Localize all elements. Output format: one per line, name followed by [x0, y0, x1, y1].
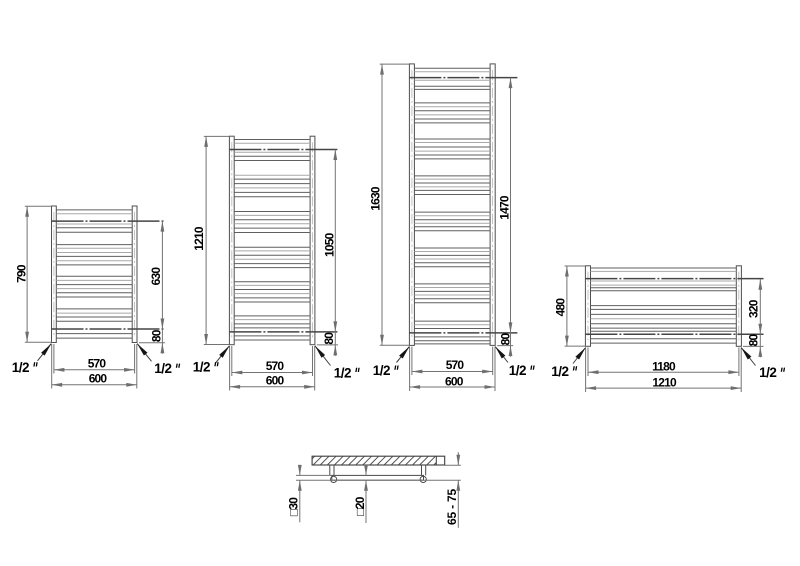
svg-text:1470: 1470	[498, 195, 512, 220]
svg-text:1/2: 1/2	[193, 360, 210, 375]
svg-text:65 - 75: 65 - 75	[445, 488, 459, 524]
svg-text:1/2: 1/2	[154, 361, 171, 376]
svg-text:80: 80	[322, 332, 336, 345]
svg-text:1/2: 1/2	[551, 364, 568, 379]
svg-text:630: 630	[149, 267, 163, 286]
svg-text:600: 600	[445, 374, 464, 388]
svg-text:80: 80	[747, 334, 761, 347]
svg-text:320: 320	[747, 299, 761, 318]
svg-text:1630: 1630	[369, 186, 383, 211]
svg-text:80: 80	[498, 333, 512, 346]
svg-text:480: 480	[554, 298, 568, 317]
svg-text:570: 570	[88, 356, 107, 370]
svg-text:570: 570	[446, 358, 465, 372]
svg-text:1/2: 1/2	[334, 365, 351, 380]
svg-text:1/2: 1/2	[759, 365, 776, 380]
svg-text:1/2: 1/2	[509, 363, 526, 378]
svg-text:1180: 1180	[652, 359, 676, 373]
svg-text:□20: □20	[353, 496, 367, 515]
svg-text:600: 600	[266, 374, 285, 388]
svg-text:1/2: 1/2	[12, 360, 29, 375]
svg-text:80: 80	[150, 329, 164, 342]
svg-text:1210: 1210	[192, 226, 206, 251]
svg-text:□30: □30	[287, 497, 301, 516]
svg-text:600: 600	[89, 372, 108, 386]
svg-text:570: 570	[266, 359, 285, 373]
svg-text:1/2: 1/2	[373, 363, 390, 378]
svg-text:790: 790	[15, 264, 29, 283]
svg-text:1050: 1050	[322, 232, 336, 257]
svg-text:1210: 1210	[652, 376, 677, 390]
